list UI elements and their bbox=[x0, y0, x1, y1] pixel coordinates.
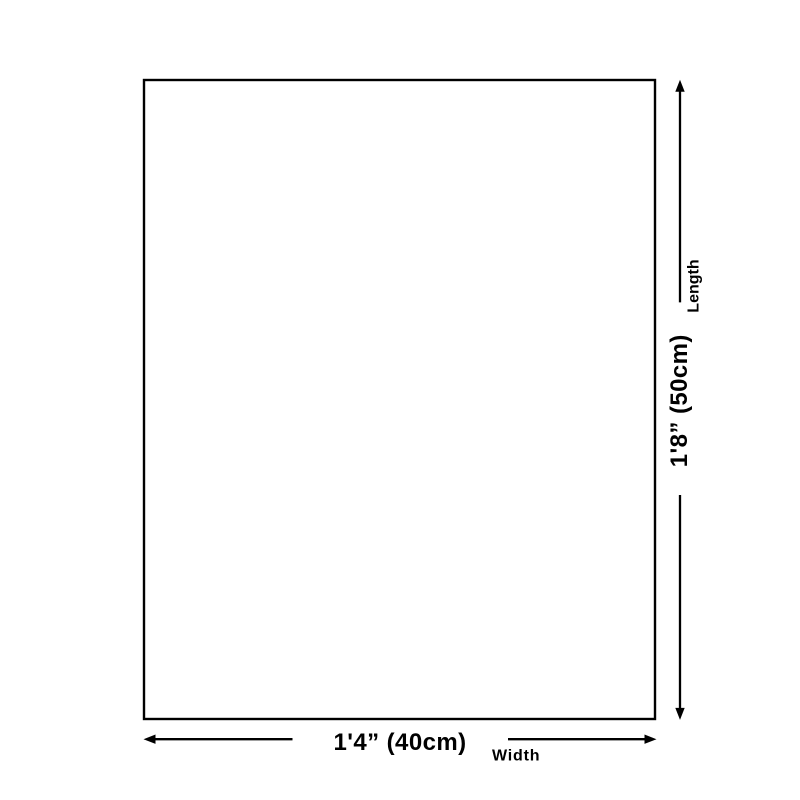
svg-text:Width: Width bbox=[492, 747, 540, 764]
svg-text:1'8” (50cm): 1'8” (50cm) bbox=[666, 334, 693, 467]
svg-text:Length: Length bbox=[686, 259, 703, 312]
svg-text:1'4” (40cm): 1'4” (40cm) bbox=[333, 729, 466, 756]
